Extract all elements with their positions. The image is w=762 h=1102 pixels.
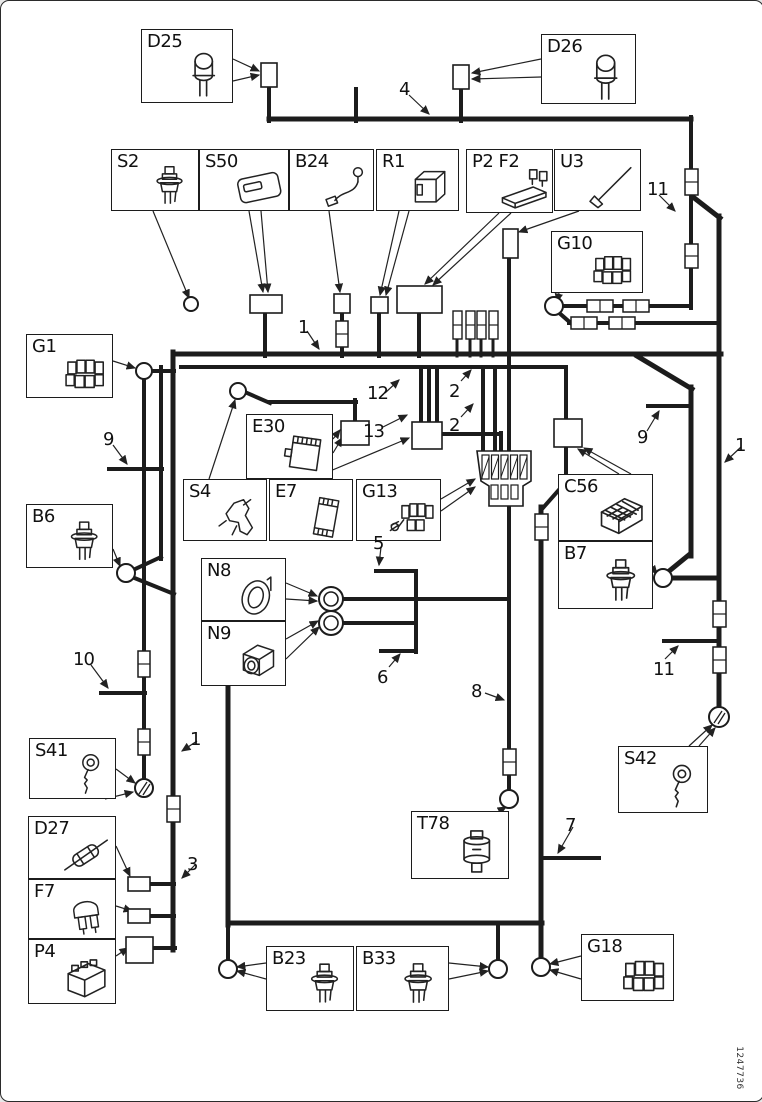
component-e30: E30	[246, 414, 333, 479]
component-label: E7	[275, 481, 297, 502]
leader-arrow	[113, 445, 127, 464]
wire-label-1: 1	[735, 435, 745, 456]
connwires-icon	[386, 495, 439, 539]
component-s42: S42	[618, 746, 708, 813]
leader-arrow	[441, 487, 475, 511]
ring-terminal	[319, 611, 343, 635]
connblock-icon	[583, 247, 641, 291]
connblock-icon	[614, 951, 672, 999]
component-label: U3	[560, 151, 584, 172]
connblock-icon	[57, 350, 111, 396]
leader-arrow	[647, 411, 659, 431]
leader-arrow	[113, 361, 135, 368]
wire-label-2: 2	[449, 381, 459, 402]
leader-arrow	[389, 654, 400, 667]
component-label: N8	[207, 560, 231, 581]
component-r1: R1	[376, 149, 459, 211]
wire-label-13: 13	[363, 421, 384, 442]
leader-arrow	[329, 211, 340, 292]
leader-arrow	[286, 599, 317, 601]
wire-segment	[247, 393, 270, 403]
wire-label-10: 10	[73, 649, 94, 670]
component-n9: N9	[201, 621, 286, 686]
terminal-block	[397, 286, 442, 313]
leader-arrow	[409, 95, 429, 114]
component-b7: B7	[558, 541, 653, 609]
component-s2: S2	[111, 149, 199, 211]
component-f7: F7	[28, 879, 116, 939]
relay-icon	[405, 165, 457, 209]
ring-terminal	[117, 564, 135, 582]
cage-icon	[591, 491, 651, 539]
component-d25: D25	[141, 29, 233, 103]
leader-arrow	[441, 479, 475, 499]
ring-terminal	[545, 297, 563, 315]
wire-label-6: 6	[377, 667, 387, 688]
terminal-block	[503, 229, 518, 258]
leader-arrow	[237, 971, 266, 979]
component-b6: B6	[26, 504, 113, 568]
terminal-block	[412, 422, 442, 449]
wire-segment	[637, 356, 692, 389]
component-g18: G18	[581, 934, 674, 1001]
ecuplate-icon	[299, 495, 351, 539]
leader-arrow	[449, 963, 488, 967]
leader-arrow	[461, 404, 473, 417]
leader-arrow	[383, 415, 407, 427]
terminal-block	[126, 937, 153, 963]
terminal-block	[261, 63, 277, 87]
cylsensor-icon	[446, 828, 507, 877]
key-icon	[60, 753, 114, 797]
ring-terminal	[500, 790, 518, 808]
leader-arrow	[433, 213, 511, 285]
component-label: P4	[34, 941, 55, 962]
terminal-block	[250, 295, 282, 313]
wire-label-12: 12	[367, 383, 388, 404]
leader-arrow	[237, 963, 266, 967]
leader-arrow	[209, 400, 235, 479]
wire-label-9: 9	[637, 427, 647, 448]
component-b23: B23	[266, 946, 354, 1011]
leader-arrow	[116, 846, 130, 876]
leader-arrow	[286, 627, 319, 659]
sensor-icon	[142, 165, 197, 209]
switchmech-icon	[213, 495, 265, 539]
wire-label-11: 11	[653, 659, 674, 680]
component-c56: C56	[558, 474, 653, 541]
part-number: 1247736	[734, 1046, 744, 1090]
leader-arrow	[261, 211, 268, 292]
leader-arrow	[461, 370, 471, 381]
wire-label-9: 9	[103, 429, 113, 450]
ecu-icon	[277, 430, 331, 477]
leader-arrow	[233, 59, 259, 71]
bulb-icon	[574, 52, 634, 102]
component-label: N9	[207, 623, 231, 644]
terminal-block	[334, 294, 350, 313]
leader-arrow	[578, 449, 619, 474]
leader-arrow	[550, 970, 581, 979]
leader-arrow	[699, 728, 715, 746]
leader-arrow	[584, 448, 631, 474]
ring-terminal	[230, 383, 246, 399]
sensor-icon	[389, 962, 447, 1009]
leader-arrow	[333, 430, 340, 439]
ring-icon	[231, 574, 284, 619]
ring-terminal	[709, 707, 729, 727]
leader-arrow	[113, 549, 120, 566]
leader-arrow	[425, 213, 499, 284]
bladefuse-icon	[59, 894, 114, 937]
wire-label-7: 7	[565, 815, 575, 836]
leader-arrow	[665, 646, 678, 659]
leader-arrow	[449, 971, 488, 979]
component-g1: G1	[26, 334, 113, 398]
wire-label-1: 1	[298, 317, 308, 338]
leader-arrow	[472, 59, 541, 73]
wire-segment	[693, 197, 720, 218]
ring-terminal	[184, 297, 198, 311]
leader-arrow	[472, 77, 541, 79]
wire-label-8: 8	[471, 681, 481, 702]
component-d27: D27	[28, 816, 116, 879]
leader-arrow	[286, 621, 318, 639]
component-label: S2	[117, 151, 139, 172]
component-label: T78	[417, 813, 449, 834]
terminal-block	[554, 419, 582, 447]
wire-label-5: 5	[373, 533, 383, 554]
component-label: S4	[189, 481, 211, 502]
cable-icon	[319, 165, 372, 209]
ring-terminal	[319, 587, 343, 611]
wire-segment	[668, 554, 690, 572]
ring-terminal	[219, 960, 237, 978]
wire-label-4: 4	[399, 79, 409, 100]
leader-arrow	[550, 956, 581, 964]
component-label: B7	[564, 543, 587, 564]
component-s50: S50	[199, 149, 289, 211]
leader-arrow	[519, 211, 579, 232]
leader-arrow	[307, 331, 319, 349]
leader-arrow	[233, 75, 259, 81]
diagram-frame: D25D26S2S50B24R1P2 F2U3G10G1E30S4E7G13C5…	[0, 0, 762, 1102]
component-n8: N8	[201, 558, 286, 621]
component-g13: G13	[356, 479, 441, 541]
leader-arrow	[485, 693, 504, 700]
ring-terminal	[654, 569, 672, 587]
wire-label-11: 11	[647, 179, 668, 200]
component-label: R1	[382, 151, 405, 172]
component-s4: S4	[183, 479, 267, 541]
component-p4: P4	[28, 939, 116, 1004]
inlinefuse-icon	[59, 832, 114, 877]
sensor-icon	[57, 520, 111, 566]
component-label: G1	[32, 336, 56, 357]
fusebox-icon	[497, 165, 551, 211]
component-label: B6	[32, 506, 55, 527]
component-t78: T78	[411, 811, 509, 879]
ring-terminal	[532, 958, 550, 976]
terminal-block	[128, 909, 150, 923]
module-icon	[231, 165, 287, 209]
leader-arrow	[116, 769, 135, 783]
leader-arrow	[249, 211, 263, 292]
wire-segment	[132, 577, 174, 594]
battery-icon	[59, 955, 114, 1002]
key-icon	[650, 763, 706, 811]
leader-arrow	[153, 211, 189, 298]
sensor-icon	[591, 558, 651, 607]
solenoid-icon	[231, 637, 284, 684]
wire-label-3: 3	[187, 854, 197, 875]
wire-label-2: 2	[449, 415, 459, 436]
component-p2f2: P2 F2	[466, 149, 553, 213]
leader-arrow	[286, 583, 317, 596]
terminal-block	[128, 877, 150, 891]
component-e7: E7	[269, 479, 353, 541]
component-label: F7	[34, 881, 55, 902]
antenna-icon	[585, 165, 639, 209]
sensor-icon	[297, 962, 352, 1009]
terminal-block	[371, 297, 388, 313]
component-u3: U3	[554, 149, 641, 211]
ring-terminal	[136, 363, 152, 379]
component-d26: D26	[541, 34, 636, 104]
bulb-icon	[173, 48, 231, 101]
component-b24: B24	[289, 149, 374, 211]
component-s41: S41	[29, 738, 116, 799]
ring-terminal	[489, 960, 507, 978]
wire-label-1: 1	[190, 729, 200, 750]
component-g10: G10	[551, 231, 643, 293]
component-b33: B33	[356, 946, 449, 1011]
terminal-block	[453, 65, 469, 89]
